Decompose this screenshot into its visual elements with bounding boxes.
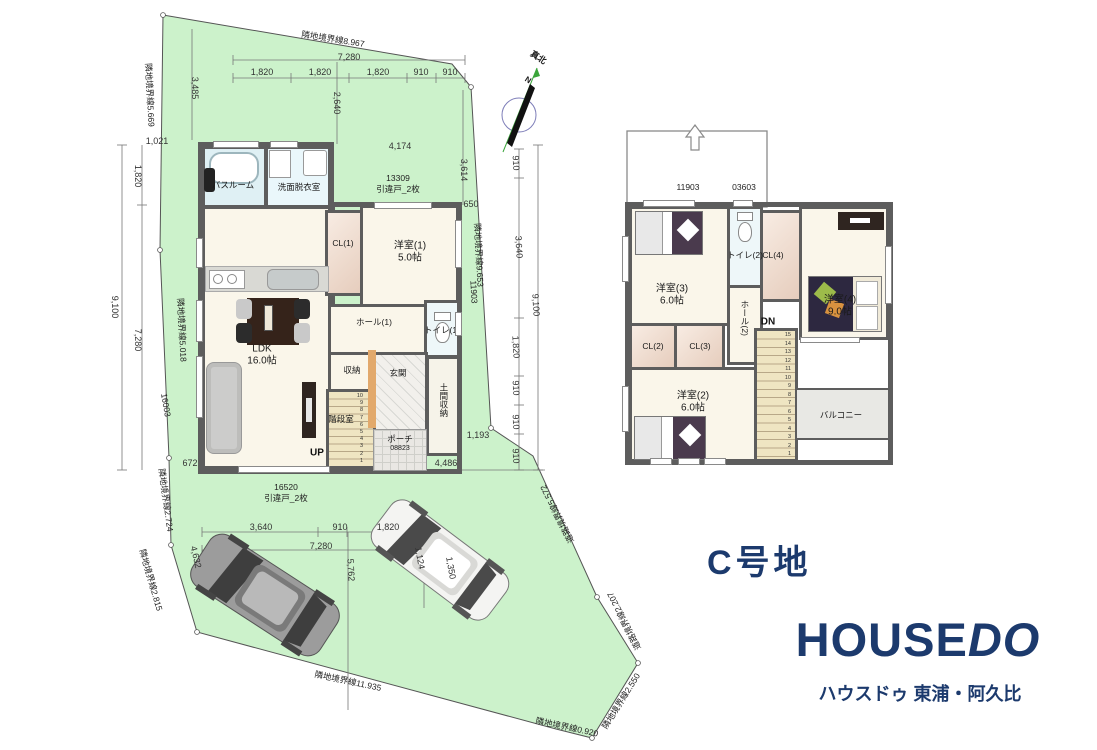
floorplan-sheet: 10987654321 バスルーム 洗面脱衣室 CL(1) 洋室(1)5.0帖 …: [0, 0, 1097, 750]
dimension-label: 672: [182, 458, 197, 468]
label-doma: 土間収納: [438, 383, 448, 417]
dimension-label: 910: [442, 67, 457, 77]
stair-number: 3: [353, 443, 363, 449]
chair: [236, 299, 252, 319]
dimension-label: 3,640: [513, 235, 524, 258]
window: [213, 141, 259, 148]
label-bed4: 洋室(4)9.0帖: [824, 295, 856, 318]
window: [885, 246, 892, 304]
window: [643, 200, 695, 207]
label-hall1: ホール(1): [356, 318, 392, 328]
window-code-label: 引違戸_2枚: [264, 492, 307, 504]
label-storage: 収納: [343, 366, 360, 376]
bed3-graphic: [635, 211, 703, 255]
dimension-label: 2,640: [332, 92, 342, 115]
stair-number: 4: [353, 436, 363, 442]
stair-number: 1: [781, 451, 791, 457]
dimension-label: 650: [463, 199, 478, 209]
label-washroom: 洗面脱衣室: [278, 183, 321, 193]
stair-number: 11: [781, 366, 791, 372]
logo-house: HOUSE: [796, 613, 968, 666]
window: [704, 458, 726, 465]
label-cl1: CL(1): [332, 239, 353, 249]
dimension-label: 9,100: [110, 296, 120, 319]
stair-number: 8: [353, 407, 363, 413]
label-hall2: ホール(2): [739, 300, 749, 336]
dimension-label: 4,174: [389, 141, 412, 151]
window-code-label: 引違戸_2枚: [376, 183, 419, 195]
window: [270, 141, 298, 148]
room-cl1: [325, 210, 363, 296]
dimension-label: 4,486: [435, 458, 458, 468]
dimension-label: 1,820: [251, 67, 274, 77]
room-genkan: [372, 352, 428, 432]
dimension-label: 910: [511, 155, 522, 171]
dimension-label: 910: [511, 380, 522, 396]
stair-number: 3: [781, 434, 791, 440]
label-up: UP: [310, 448, 324, 459]
room-hall1: [328, 304, 428, 357]
label-porch: ポーチ: [387, 435, 413, 445]
label-genkan: 玄関: [389, 369, 406, 379]
stair-number: 5: [353, 429, 363, 435]
label-porch-code: 08823: [390, 445, 409, 453]
window: [678, 458, 700, 465]
label-toilet2: トイレ(2): [727, 251, 763, 261]
label-ldk: LDK16.0帖: [247, 344, 276, 367]
stair-number: 14: [781, 341, 791, 347]
tv-board-2f: [838, 212, 884, 230]
dimension-label: 3,640: [250, 522, 273, 532]
stair-number: 8: [781, 392, 791, 398]
window: [622, 236, 629, 282]
compass-north-arrow: [502, 68, 540, 152]
housedo-logo: HOUSEDO: [758, 612, 1078, 667]
dimension-label: 5,762: [345, 558, 356, 581]
stair-number: 7: [781, 400, 791, 406]
stair-number: 9: [781, 383, 791, 389]
toilet2-bowl: [738, 222, 752, 242]
label-cl4: CL(4): [762, 251, 783, 261]
toilet-tank: [434, 312, 451, 321]
bed2-graphic: [634, 416, 706, 460]
stair-number: 9: [353, 400, 363, 406]
dimension-label: 1,820: [510, 335, 521, 358]
dimension-label: 7,280: [133, 329, 143, 352]
room-stairs2: 151413121110987654321: [754, 328, 798, 462]
label-dn: DN: [761, 317, 775, 328]
label-stair-room: 階段室: [328, 415, 354, 425]
stair-number: 10: [353, 393, 363, 399]
window: [196, 356, 203, 418]
stair-number: 10: [781, 375, 791, 381]
dimension-label: 9,100: [530, 293, 541, 316]
dimension-label: 1,021: [146, 136, 169, 146]
logo-subtitle: ハウスドゥ 東浦・阿久比: [775, 680, 1065, 706]
window: [650, 458, 672, 465]
window: [374, 202, 432, 209]
dimension-label: 7,280: [338, 52, 361, 62]
label-balcony: バルコニー: [820, 411, 862, 421]
window: [238, 466, 330, 473]
dimension-label: 1,193: [467, 430, 490, 440]
window-code-label: 03603: [732, 182, 756, 192]
window: [800, 337, 860, 343]
stair-number: 4: [781, 426, 791, 432]
label-bed2: 洋室(2)6.0帖: [677, 391, 709, 414]
window: [622, 386, 629, 432]
dimension-label: 7,280: [310, 541, 333, 551]
window: [455, 312, 462, 336]
stair-number: 2: [781, 443, 791, 449]
window-code-label: 16520: [274, 482, 298, 492]
table-items: [264, 305, 273, 331]
label-cl2: CL(2): [642, 342, 663, 352]
label-bathroom: バスルーム: [212, 181, 254, 191]
roof-outline: [627, 125, 767, 207]
stair-number: 13: [781, 349, 791, 355]
toilet2-tank: [737, 212, 753, 221]
dimension-label: 3,485: [190, 77, 200, 100]
tv-screen: [306, 398, 312, 422]
stair-number: 2: [353, 451, 363, 457]
dimension-label: 910: [511, 448, 522, 464]
vanity: [269, 150, 291, 178]
window: [455, 220, 462, 268]
washing-machine: [303, 150, 327, 176]
genkan-step: [368, 350, 376, 428]
dimension-label: 910: [332, 522, 347, 532]
logo-do: DO: [968, 613, 1041, 666]
stair-number: 6: [781, 409, 791, 415]
chair: [294, 323, 310, 343]
stair-number: 1: [353, 458, 363, 464]
stair-number: 12: [781, 358, 791, 364]
dimension-label: 1,820: [309, 67, 332, 77]
sofa: [206, 362, 242, 454]
window: [733, 200, 753, 207]
stair-number: 5: [781, 417, 791, 423]
dining-table: [247, 298, 299, 345]
dimension-label: 3,614: [459, 159, 469, 182]
window-code-label: 11903: [676, 182, 699, 192]
window: [196, 238, 203, 268]
burner-icon: [227, 274, 237, 284]
dimension-label: 1,820: [133, 165, 143, 188]
label-bed3: 洋室(3)6.0帖: [656, 284, 688, 307]
window: [196, 300, 203, 342]
stair-number: 15: [781, 332, 791, 338]
chair: [236, 323, 252, 343]
stair-number: 6: [353, 422, 363, 428]
kitchen-sink: [267, 269, 319, 290]
dimension-label: 910: [511, 414, 522, 430]
chair: [294, 299, 310, 319]
burner-icon: [213, 274, 223, 284]
dimension-label: 1,820: [367, 67, 390, 77]
label-bed1: 洋室(1)5.0帖: [394, 241, 426, 264]
window-code-label: 13309: [386, 173, 410, 183]
label-cl3: CL(3): [689, 342, 710, 352]
lot-title: C号地: [707, 535, 812, 584]
dimension-label: 1,820: [377, 522, 400, 532]
stair-number: 7: [353, 415, 363, 421]
dimension-label: 910: [413, 67, 428, 77]
